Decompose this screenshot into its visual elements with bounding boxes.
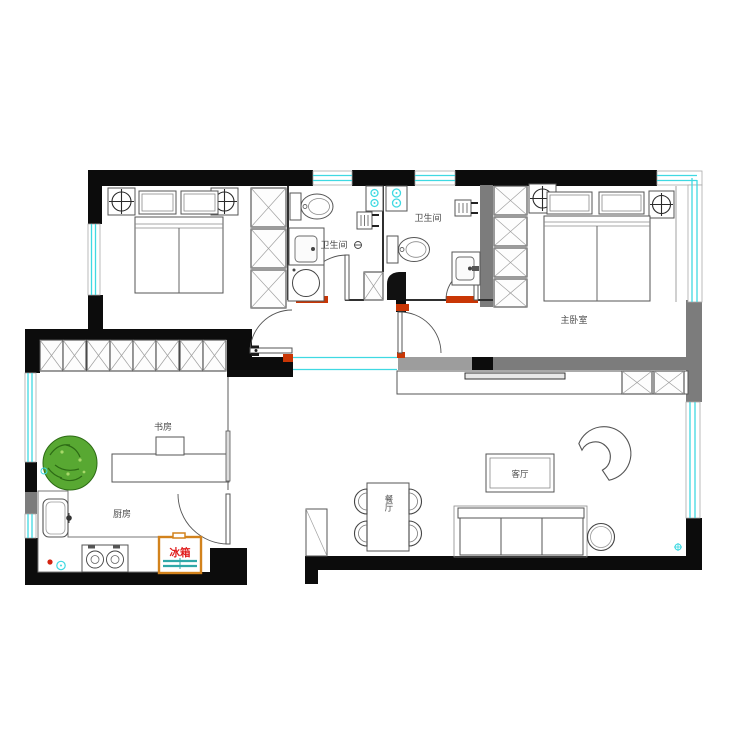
- tv-console: [397, 371, 688, 394]
- duct-shaft: [364, 272, 383, 300]
- pillow: [599, 192, 644, 214]
- wall-bath2-master-gray: [480, 185, 493, 307]
- pillow: [547, 192, 592, 214]
- wall-master-south-gray: [493, 357, 688, 370]
- kitchen-sink: [43, 499, 72, 537]
- floor-plan: 卫生间 卫生间: [0, 0, 740, 740]
- kitchen-area: 书房 冰箱 厨房: [38, 340, 230, 573]
- wall-living-bottom: [305, 556, 702, 570]
- toilet: [387, 236, 430, 263]
- threshold-hall-door: [283, 354, 293, 362]
- wash-sink: [452, 252, 480, 285]
- wall-left-upper: [88, 186, 102, 224]
- wall-kitchen-se: [210, 548, 247, 585]
- room-label-dining: 餐厅: [383, 495, 393, 512]
- room-label-bathroom-left: 卫生间: [320, 239, 347, 251]
- wardrobe: [494, 186, 527, 307]
- plant: [43, 436, 97, 490]
- wall-kitchen-left-gray: [25, 492, 37, 514]
- bedroom-secondary: [108, 188, 286, 308]
- room-label-master-bedroom: 主卧室: [560, 314, 587, 326]
- hallway-transition-lines: [293, 358, 397, 370]
- fridge: 冰箱: [159, 533, 201, 573]
- wall-right-bottom-corner: [686, 518, 702, 570]
- window-top-left: [313, 171, 352, 185]
- shoe-cabinet: [306, 509, 327, 556]
- pillow: [181, 191, 218, 214]
- room-label-bathroom-right: 卫生间: [414, 212, 441, 224]
- threshold-bath2: [446, 296, 478, 303]
- coffee-table: 客厅: [486, 454, 554, 492]
- side-table: [588, 524, 615, 551]
- sofa: [454, 506, 587, 557]
- wall-top-b: [352, 170, 415, 186]
- fixture-symbol-icon: [354, 242, 362, 249]
- wall-hall-black-seg: [472, 357, 493, 370]
- window-top-mid: [415, 171, 455, 185]
- wall-top-a: [88, 170, 313, 186]
- wall-kitchen-left-a: [25, 462, 37, 493]
- nightstand: [108, 188, 135, 215]
- wall-living-bottom-step: [305, 556, 318, 584]
- door-hallway: [250, 310, 292, 356]
- basin-unit: [366, 186, 383, 211]
- room-label-study: 书房: [154, 421, 172, 433]
- fridge-label: 冰箱: [170, 546, 191, 559]
- window-kitchen-lower: [25, 514, 36, 538]
- pillow: [139, 191, 176, 214]
- nightstand: [649, 191, 674, 218]
- shafts: [364, 272, 406, 300]
- storage-cabinet-row: [40, 340, 226, 371]
- dining-chair: [409, 489, 421, 514]
- wall-kitchen-top: [25, 329, 252, 340]
- dining-area: 餐厅: [306, 483, 421, 556]
- dining-table: 餐厅: [367, 483, 409, 551]
- living-room: 客厅: [454, 423, 682, 557]
- wall-hall-gray-light: [398, 357, 472, 370]
- room-label-kitchen: 厨房: [113, 508, 131, 520]
- door-master-bedroom: [398, 312, 441, 353]
- room-label-living: 客厅: [511, 469, 529, 480]
- tv-screen: [465, 373, 565, 379]
- armchair: [574, 423, 634, 482]
- outlet-icon: [674, 543, 682, 551]
- study-desk: [112, 431, 230, 482]
- dining-chair: [354, 489, 367, 514]
- basin-unit: [386, 186, 407, 211]
- thresholds: [283, 296, 478, 362]
- threshold-master-a: [396, 304, 409, 311]
- double-bed: [135, 217, 223, 293]
- stove: [82, 545, 128, 572]
- washing-machine: [288, 265, 324, 301]
- gas-point-icon: [47, 559, 52, 564]
- floor-plan-canvas: 卫生间 卫生间: [0, 0, 740, 740]
- double-bed: [544, 216, 650, 301]
- master-bedroom: 主卧室: [494, 184, 674, 326]
- wall-kitchen-cap-left: [25, 329, 40, 373]
- toilet: [290, 193, 333, 220]
- window-kitchen-upper: [25, 373, 36, 462]
- vanity-sink: [289, 228, 324, 268]
- dining-chair: [409, 521, 421, 546]
- wardrobe: [251, 188, 286, 308]
- window-living-right: [686, 402, 700, 518]
- window-bedroom2-left: [88, 224, 100, 295]
- wall-left-lower: [88, 295, 103, 331]
- radiator-icon: [455, 200, 478, 216]
- radiator-icon: [357, 212, 379, 229]
- dining-chair: [354, 521, 367, 546]
- flue-shaft: [387, 272, 406, 300]
